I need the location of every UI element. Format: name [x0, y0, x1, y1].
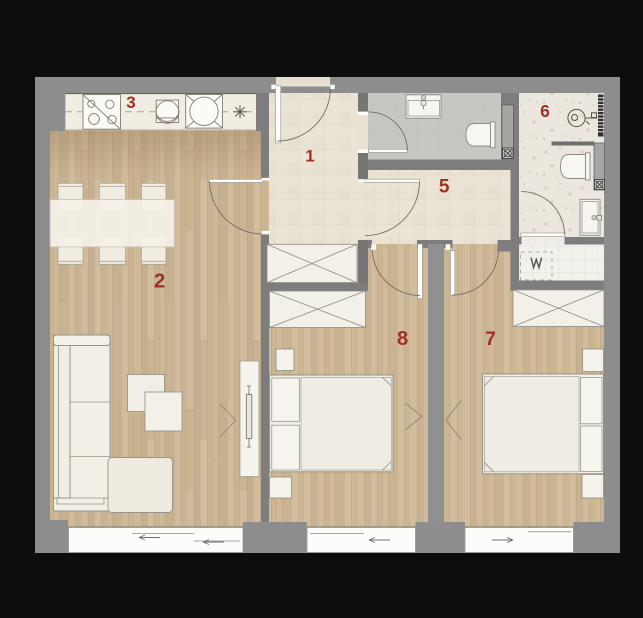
svg-text:3: 3 [126, 93, 135, 112]
svg-text:8: 8 [397, 327, 408, 350]
svg-text:1: 1 [305, 147, 314, 166]
svg-text:7: 7 [485, 328, 496, 350]
svg-text:5: 5 [439, 177, 450, 198]
svg-text:2: 2 [154, 270, 165, 293]
svg-text:6: 6 [540, 101, 550, 121]
